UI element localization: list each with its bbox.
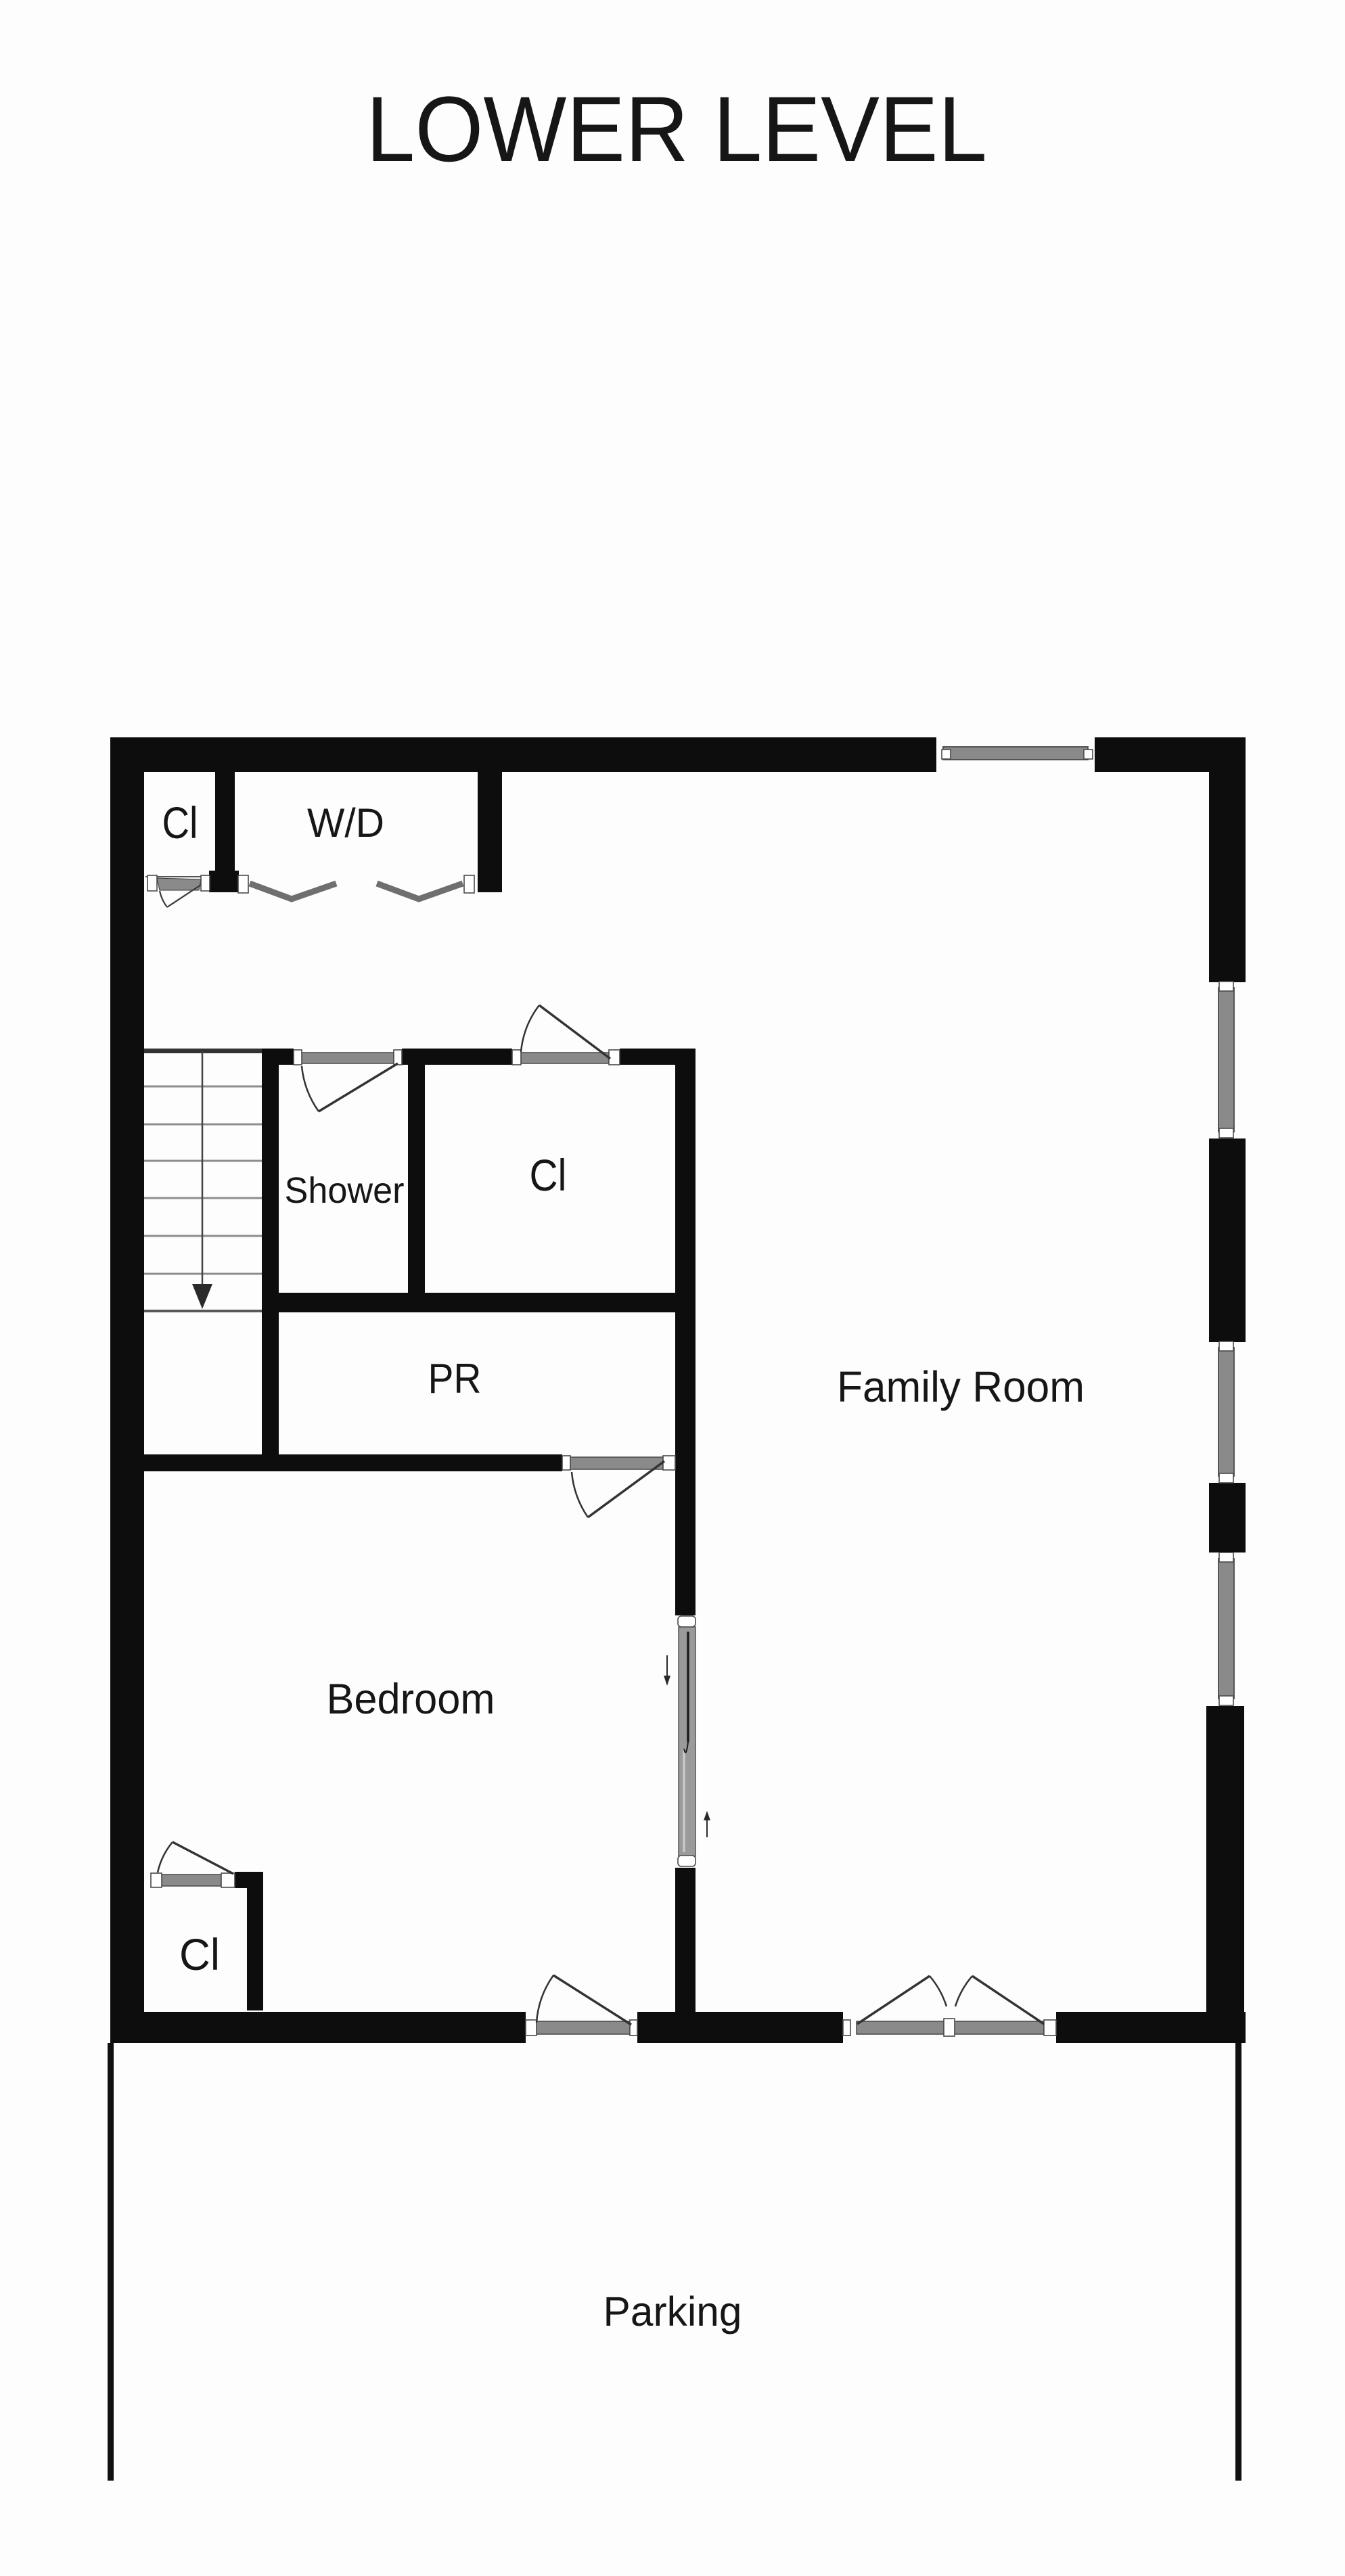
svg-text:Family Room: Family Room [837,1362,1085,1411]
svg-text:Cl: Cl [162,798,198,848]
svg-text:Cl: Cl [179,1929,220,1979]
svg-text:Parking: Parking [603,2288,742,2334]
svg-text:Shower: Shower [285,1170,405,1211]
svg-text:Cl: Cl [530,1150,567,1200]
svg-text:PR: PR [428,1356,482,1402]
svg-text:LOWER LEVEL: LOWER LEVEL [366,78,987,181]
svg-text:Bedroom: Bedroom [327,1676,495,1723]
svg-text:W/D: W/D [307,800,384,846]
